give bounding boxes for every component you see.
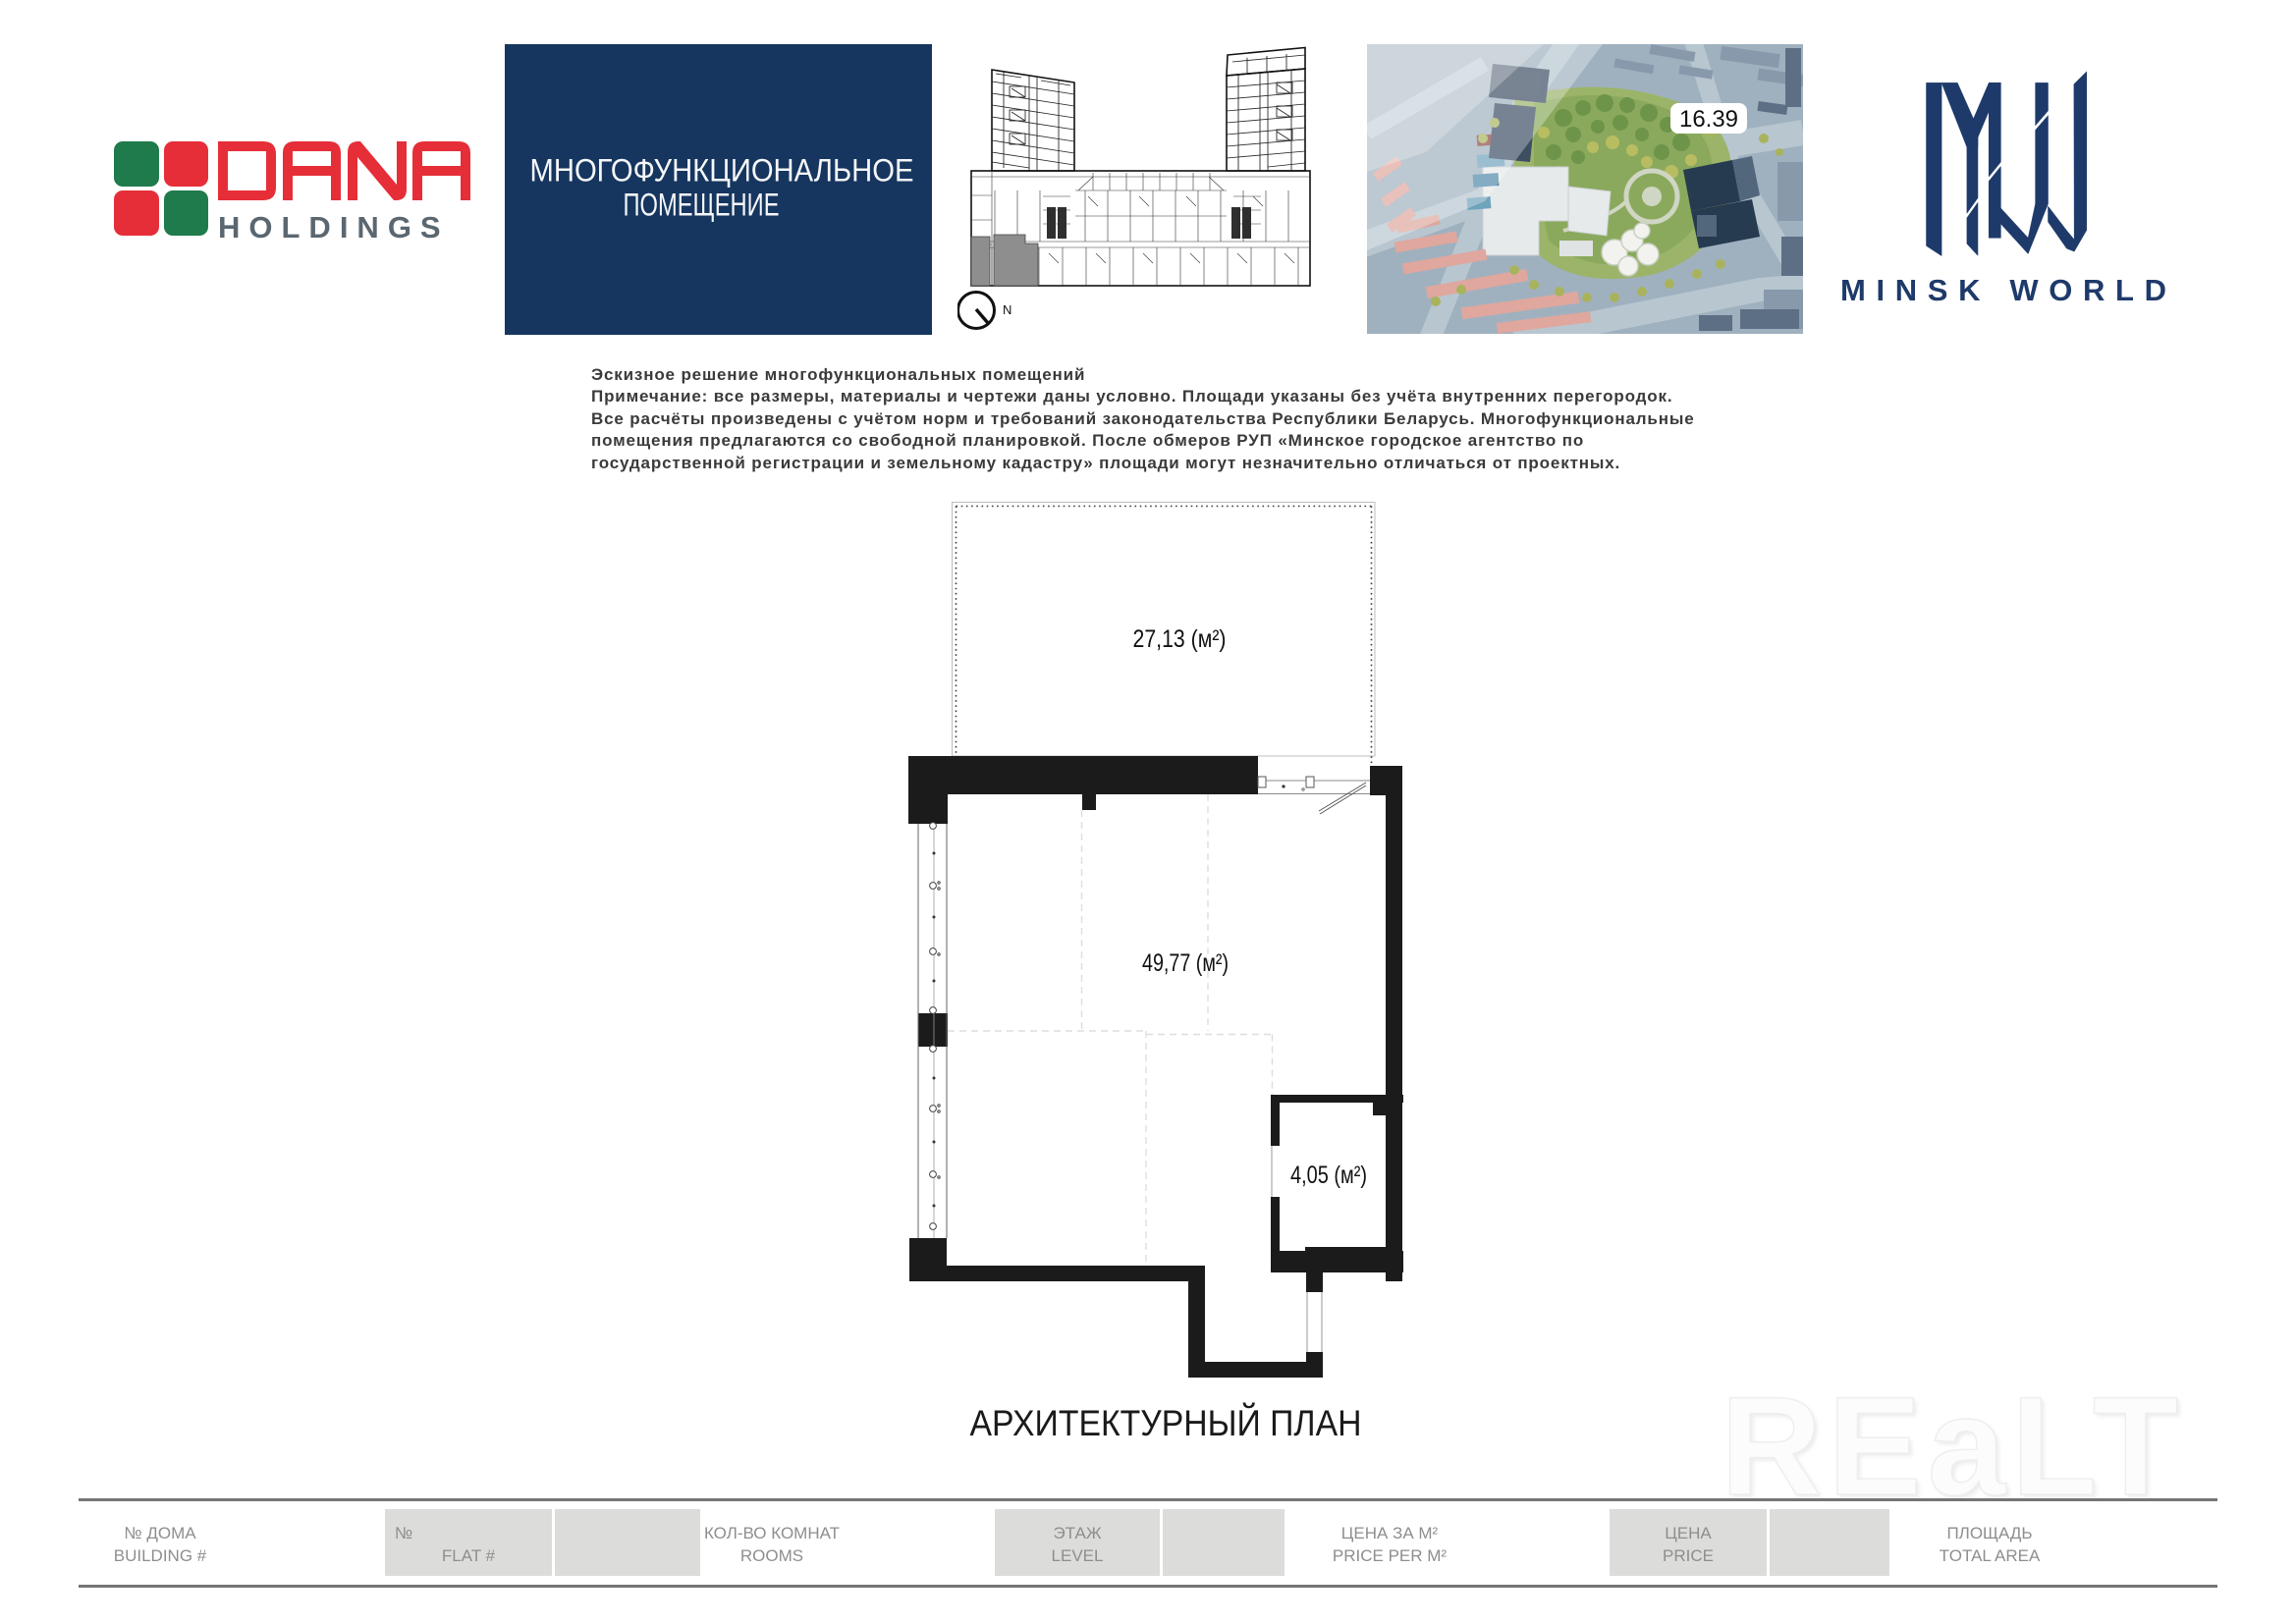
svg-text:49,77 (м²): 49,77 (м²) [1142, 949, 1229, 977]
svg-text:HOLDINGS: HOLDINGS [218, 210, 450, 244]
svg-text:27,13 (м²): 27,13 (м²) [1133, 625, 1227, 653]
svg-text:16.39: 16.39 [1679, 106, 1738, 133]
svg-text:АРХИТЕКТУРНЫЙ ПЛАН: АРХИТЕКТУРНЫЙ ПЛАН [970, 1402, 1362, 1443]
svg-text:ПОМЕЩЕНИЕ: ПОМЕЩЕНИЕ [624, 188, 780, 223]
svg-text:N: N [1003, 302, 1011, 317]
svg-text:MINSK WORLD: MINSK WORLD [1840, 273, 2166, 307]
svg-text:4,05 (м²): 4,05 (м²) [1290, 1162, 1367, 1189]
svg-text:МНОГОФУНКЦИОНАЛЬНОЕ: МНОГОФУНКЦИОНАЛЬНОЕ [530, 153, 914, 189]
